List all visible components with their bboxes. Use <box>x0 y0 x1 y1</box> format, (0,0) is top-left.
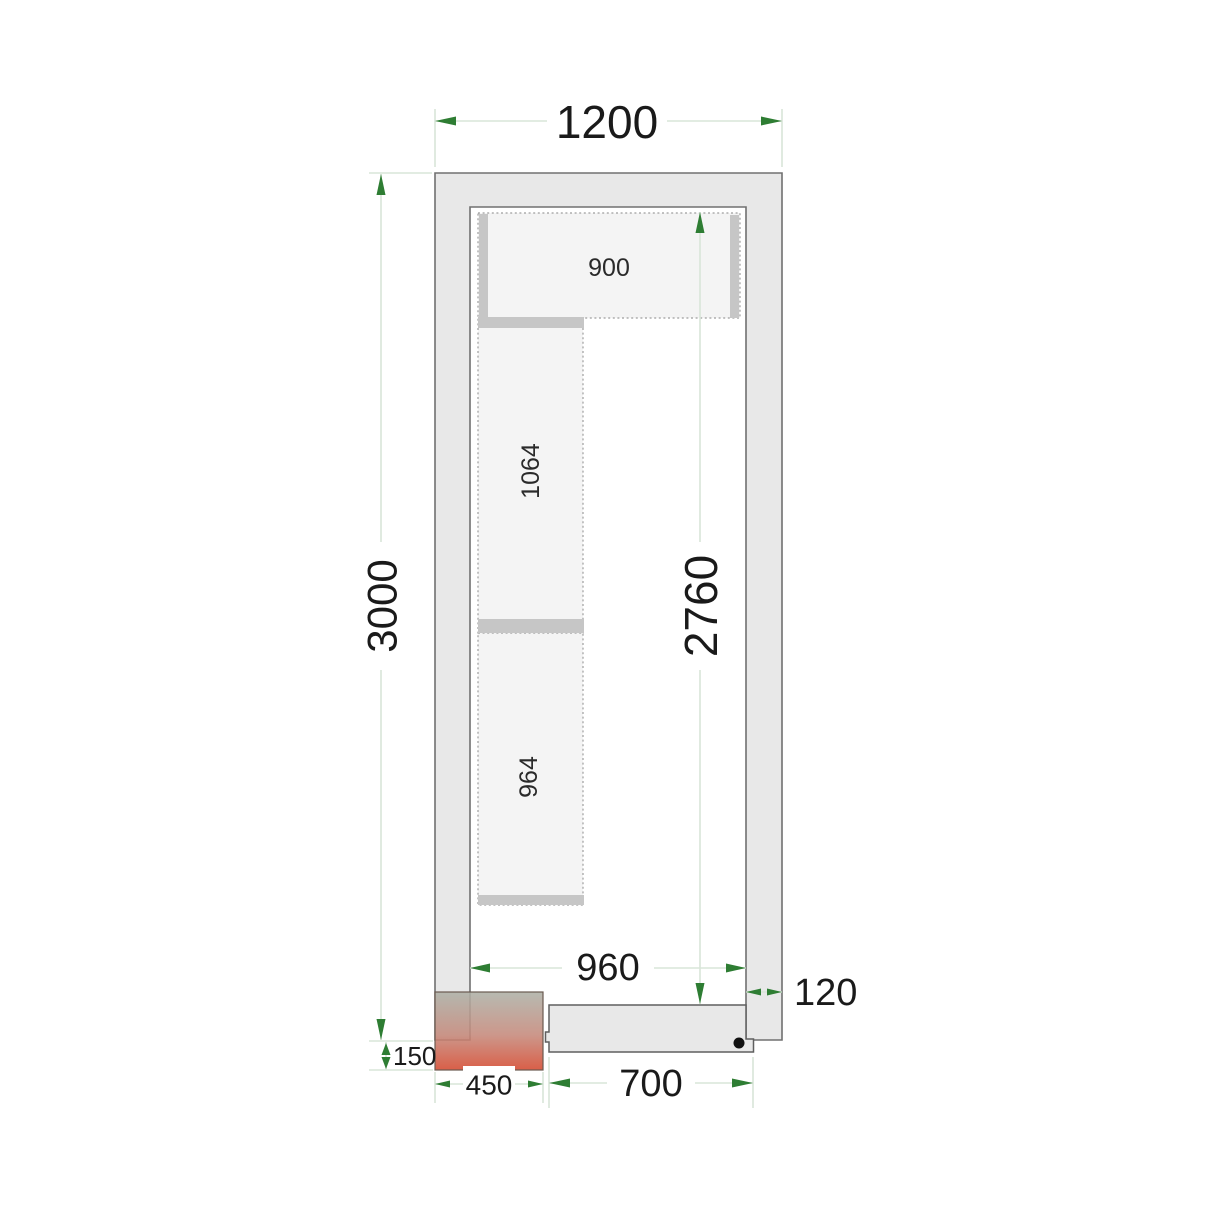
cooling-unit <box>435 992 543 1070</box>
side-shelf-upper-label: 1064 <box>517 443 545 499</box>
dim-arrow-right <box>732 1079 753 1088</box>
door-leaf <box>546 1005 754 1052</box>
dim-inner-width: 960 <box>470 946 746 989</box>
dim-label-inner-depth: 2760 <box>675 555 727 657</box>
door <box>546 1005 754 1052</box>
dim-arrow-up <box>382 1043 391 1055</box>
dim-label-outer-depth: 3000 <box>359 559 406 652</box>
dim-plinth-height: 150 <box>369 1041 436 1071</box>
cold-room-plan-diagram: 900 1064 964 1200 <box>0 0 1214 1214</box>
dim-arrow-down <box>377 1019 386 1040</box>
dim-arrow-right <box>761 117 782 126</box>
dim-door-width: 700 <box>549 1057 753 1108</box>
dim-inner-depth: 2760 <box>675 212 727 1004</box>
dim-unit-width: 450 <box>435 1066 543 1103</box>
dim-arrow-right <box>726 964 746 973</box>
dim-arrow-down <box>382 1057 391 1069</box>
dim-arrow-down <box>696 983 705 1004</box>
top-shelf-label: 900 <box>588 254 630 282</box>
dim-label-plinth-height: 150 <box>393 1041 436 1071</box>
dim-label-outer-width: 1200 <box>556 96 658 148</box>
dim-label-inner-width: 960 <box>576 947 639 989</box>
dim-outer-width: 1200 <box>435 96 782 167</box>
dim-label-unit-width: 450 <box>466 1070 513 1101</box>
dim-arrow-left <box>435 117 456 126</box>
dim-outer-depth: 3000 <box>357 173 433 1041</box>
dim-arrow-left <box>470 964 490 973</box>
side-shelf-upper-label-group: 1064 <box>517 443 545 499</box>
shelf-crossbar-top <box>478 317 584 328</box>
dim-arrow-up <box>377 174 386 195</box>
side-shelf-lower-label: 964 <box>515 756 543 798</box>
shelf-crossbar-middle <box>478 619 584 633</box>
dim-label-wall-thickness: 120 <box>794 972 857 1014</box>
dim-arrow-right <box>528 1081 543 1088</box>
dim-label-door-width: 700 <box>619 1063 682 1105</box>
dim-arrow-left <box>549 1079 570 1088</box>
shelf-upright-right <box>730 215 739 318</box>
door-handle-dot <box>734 1038 745 1049</box>
side-shelf-lower-label-group: 964 <box>515 756 543 798</box>
shelf-crossbar-bottom <box>478 895 584 905</box>
shelf-upright-left <box>479 214 488 318</box>
cold-room-plan-canvas: 900 1064 964 1200 <box>0 0 1214 1214</box>
dim-arrow-left <box>435 1081 450 1088</box>
